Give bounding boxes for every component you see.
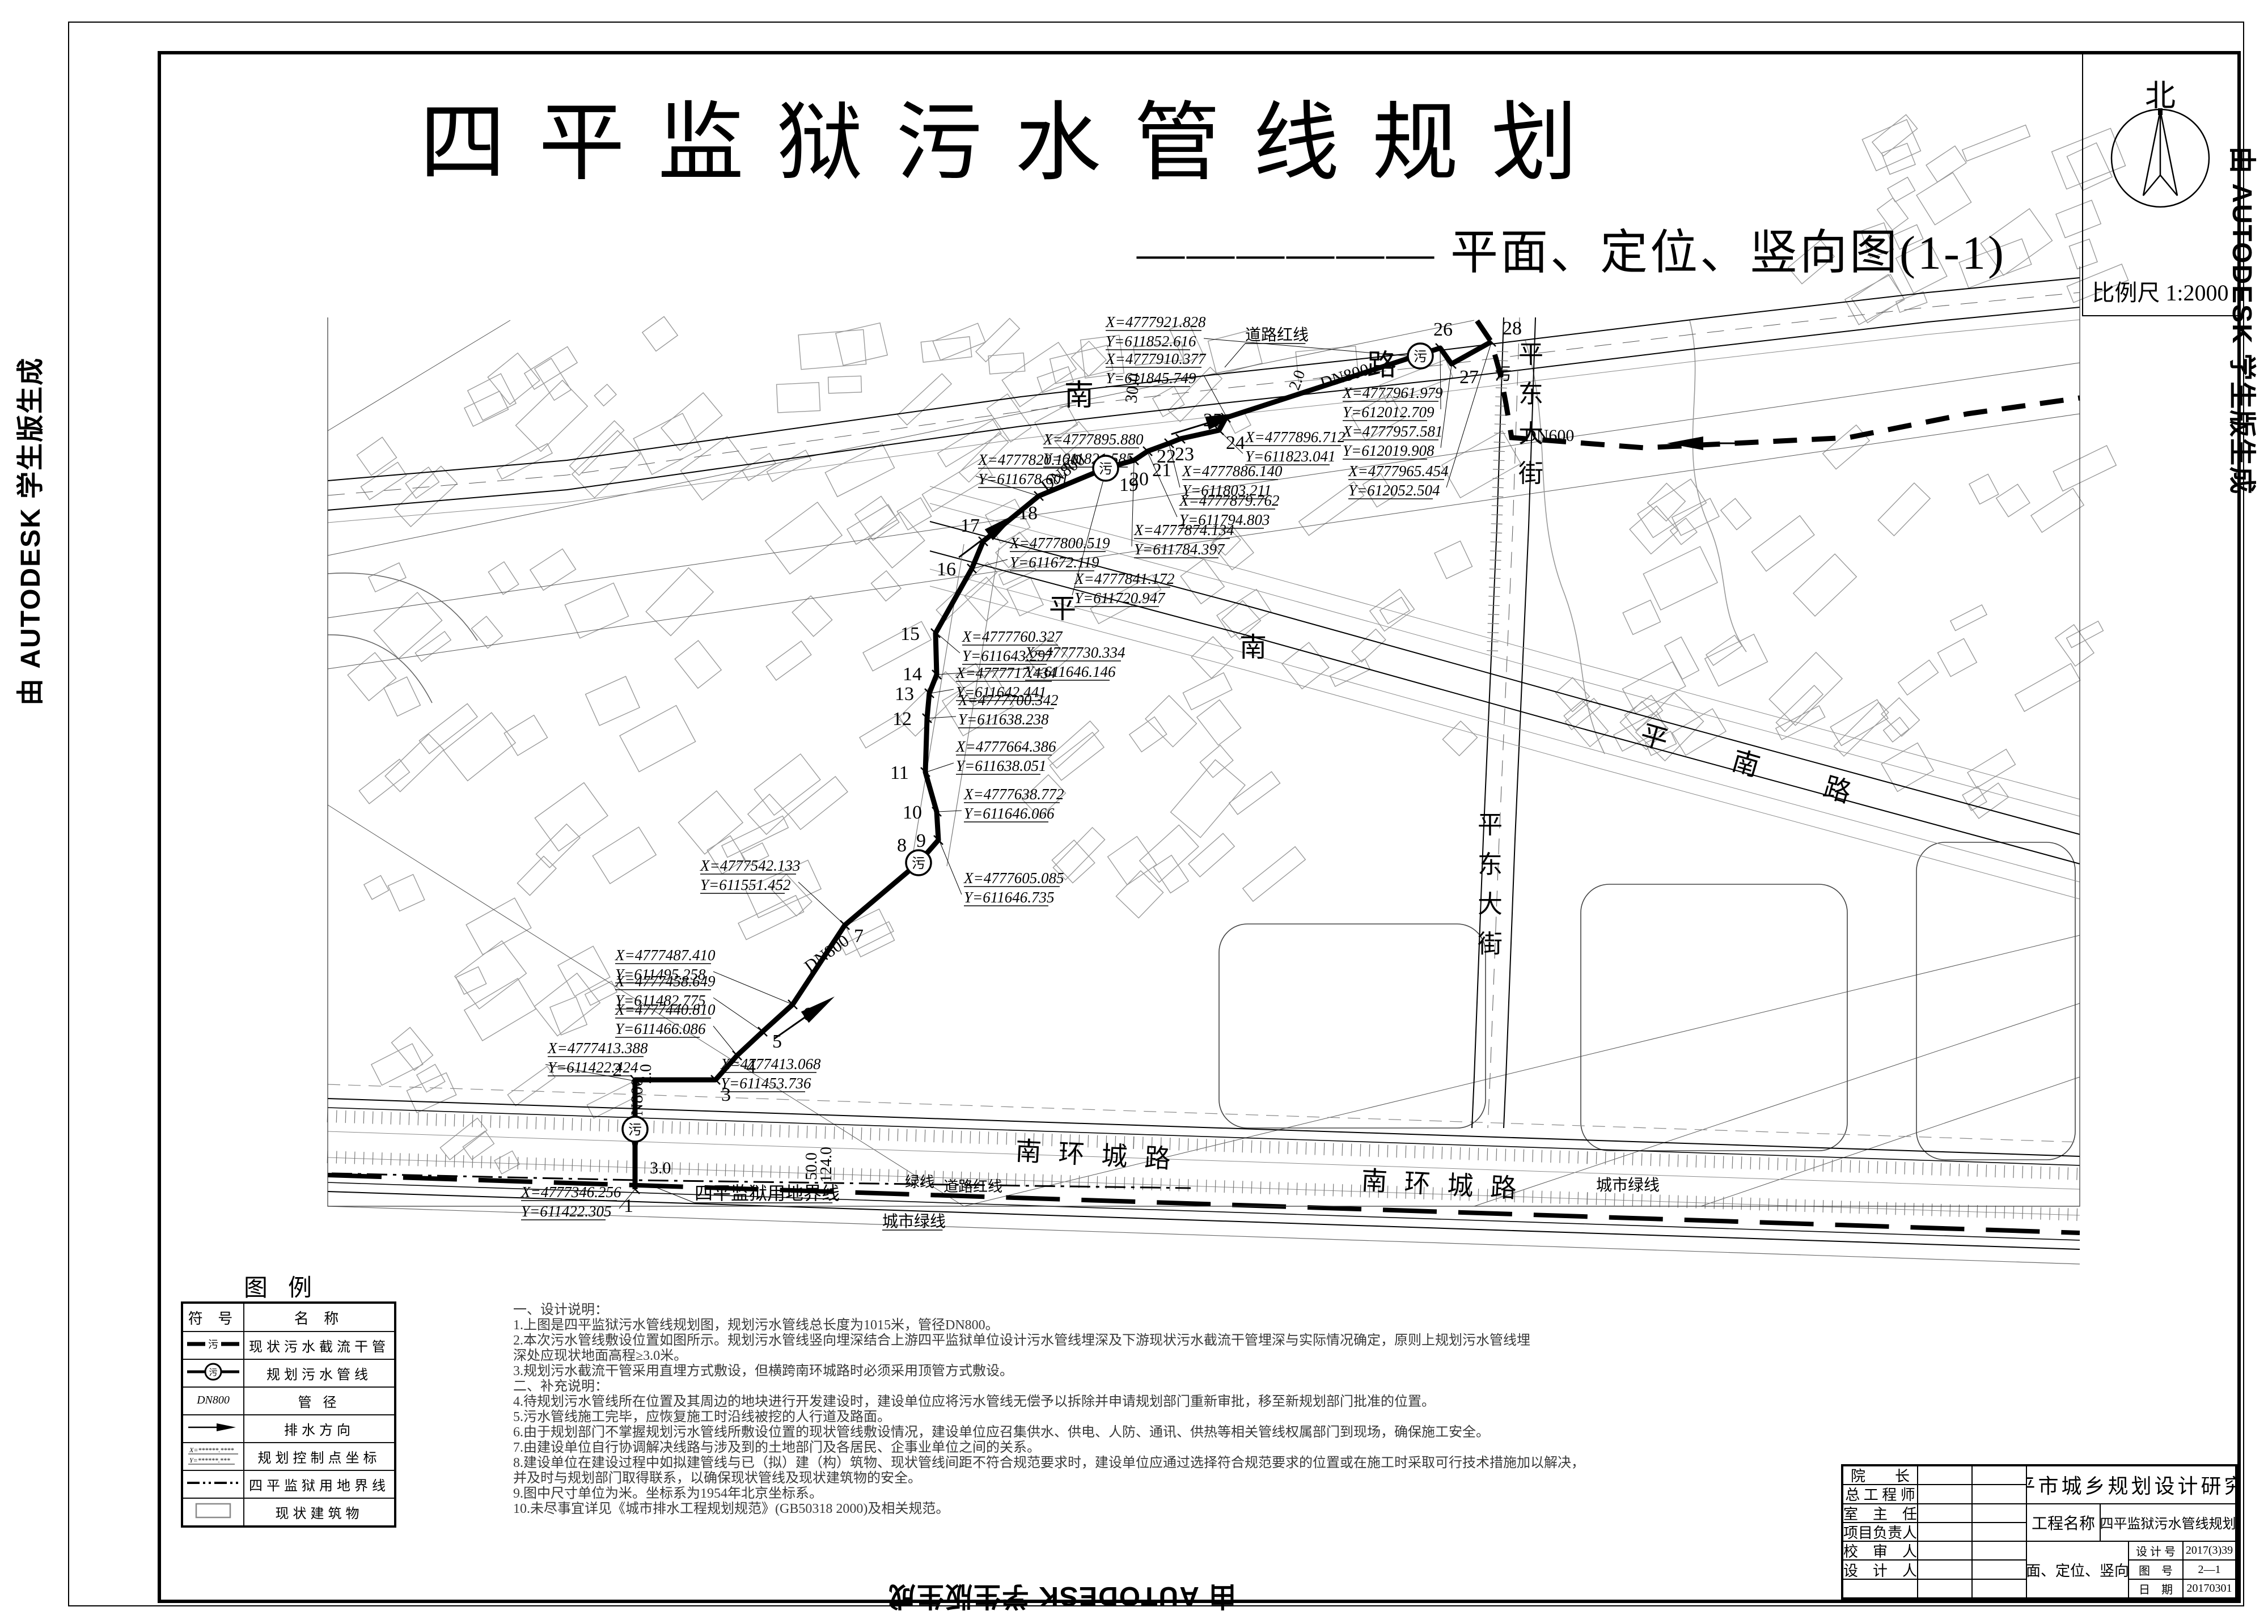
hatch-tick — [1495, 415, 1506, 415]
building — [964, 577, 1008, 621]
hatch-tick — [1814, 1159, 1814, 1172]
coord-label-y: Y=611495.258 — [615, 966, 706, 983]
building — [933, 323, 985, 360]
building — [1665, 637, 1699, 679]
hatch-tick — [654, 1121, 654, 1133]
hatch-tick — [1641, 1194, 1642, 1206]
hatch-tick — [445, 1155, 446, 1167]
building — [765, 502, 842, 574]
node-number: 22 — [1157, 446, 1176, 467]
coord-leader — [713, 998, 763, 1032]
hatch-tick — [761, 1165, 762, 1177]
hatch-tick — [1206, 1180, 1207, 1192]
building — [1007, 578, 1043, 616]
hatch-tick — [1669, 1195, 1669, 1207]
coord-label-x: X=4777413.388 — [547, 1040, 648, 1057]
manhole-glyph: 污 — [1414, 349, 1427, 364]
note-line: 1.上图是四平监狱污水管线规划图，规划污水管线总长度为1015米，管径DN800… — [513, 1318, 2050, 1333]
building — [1352, 629, 1386, 662]
coord-label-x: X=4777605.085 — [963, 870, 1064, 887]
building — [1721, 498, 1751, 529]
hatch-tick — [645, 1161, 645, 1173]
hatch-tick — [1489, 587, 1500, 588]
building — [988, 353, 1025, 374]
hatch-tick — [536, 1157, 536, 1170]
node-number: 24 — [1226, 432, 1245, 453]
hatch-tick — [545, 1158, 545, 1171]
hatch-tick — [1805, 1159, 1805, 1171]
note-line: 6.由于规划部门不掌握规划污水管线所敷设位置的现状管线敷设情况，建设单位应召集供… — [513, 1425, 2050, 1440]
drawing-title: 四平监狱污水管线规划 — [363, 73, 1667, 197]
hatch-tick — [752, 1165, 753, 1177]
hatch-tick — [1233, 1140, 1234, 1152]
hatch-tick — [761, 1124, 762, 1137]
hatch-tick — [1491, 542, 1502, 542]
hatch-tick — [1342, 1184, 1343, 1197]
hatch-tick — [1968, 1164, 1969, 1176]
building — [1623, 600, 1660, 635]
hatch-tick — [509, 1116, 509, 1129]
node-number: 18 — [1018, 503, 1038, 524]
hatch-tick — [436, 1154, 437, 1167]
plot-outline — [1219, 924, 1486, 1128]
building — [1937, 639, 1977, 677]
hatch-tick — [1660, 1195, 1660, 1207]
hatch-tick — [1015, 1173, 1016, 1186]
building — [359, 759, 409, 803]
building — [642, 316, 678, 351]
building — [777, 383, 820, 413]
hatch-tick — [1578, 1192, 1579, 1205]
node-number: 10 — [903, 802, 922, 823]
building — [2031, 488, 2084, 532]
building — [898, 374, 951, 425]
hatch-tick — [1551, 1150, 1551, 1163]
hatch-tick — [409, 1154, 409, 1166]
coord-label-x: X=4777800.519 — [1009, 535, 1110, 552]
hatch-tick — [1732, 1156, 1733, 1169]
coord-leader — [926, 763, 954, 772]
hatch-tick — [373, 1152, 373, 1165]
design-notes: 一、设计说明：1.上图是四平监狱污水管线规划图，规划污水管线总长度为1015米，… — [513, 1303, 2050, 1517]
hatch-tick — [599, 1160, 600, 1172]
hatch-tick — [680, 1163, 680, 1175]
hatch-tick — [382, 1152, 382, 1165]
building — [1243, 847, 1306, 901]
hatch-tick — [518, 1157, 518, 1169]
hatch-tick — [888, 1169, 889, 1182]
hatch-tick — [599, 1119, 600, 1131]
hatch-tick — [1242, 1181, 1243, 1193]
hatch-tick — [1215, 1180, 1216, 1193]
manhole-glyph: 污 — [1099, 461, 1112, 477]
note-line: 9.图中尺寸单位为米。坐标系为1954年北京坐标系。 — [513, 1486, 2050, 1502]
coord-label-x: X=4777895.880 — [1043, 431, 1144, 448]
building — [1116, 871, 1163, 918]
sheet-no-value: 2—1 — [2183, 1560, 2236, 1579]
hatch-tick — [409, 1113, 409, 1125]
hatch-tick — [843, 1127, 844, 1139]
note-line: 7.由建设单位自行协调解决线路与涉及到的土地部门及各居民、企事业单位之间的关系。 — [513, 1440, 2050, 1456]
hatch-tick — [1251, 1181, 1252, 1194]
hatch-tick — [1487, 642, 1499, 642]
dimension-label: 124.0 — [818, 1147, 835, 1182]
road-name-label: 南 — [1239, 633, 1267, 663]
manhole-glyph: 污 — [628, 1122, 642, 1138]
hatch-tick — [997, 1132, 998, 1144]
hatch-tick — [2059, 1167, 2059, 1180]
hatch-tick — [952, 1130, 953, 1143]
hatch-tick — [961, 1131, 962, 1143]
hatch-tick — [771, 1125, 771, 1137]
node-number: 8 — [897, 835, 907, 856]
legend-title: 图例 — [244, 1269, 332, 1303]
road-name-label: 平 — [1478, 811, 1503, 839]
map-annotation: 城市绿线 — [1596, 1176, 1660, 1194]
hatch-tick — [1923, 1203, 1923, 1216]
legend-row: 排水方向 — [182, 1415, 395, 1443]
coord-label-y: Y=611643.297 — [962, 647, 1053, 664]
building — [1180, 559, 1224, 604]
pingnan-road-parallel — [930, 569, 2080, 882]
hatch-tick — [418, 1113, 418, 1125]
hatch-tick — [1569, 1151, 1569, 1163]
title-block: 院 长总 工 程 师室 主 任项目负责人校 审 人设 计 人四平市城乡规划设计研… — [1841, 1464, 2237, 1600]
hatch-tick — [1493, 460, 1504, 461]
titleblock-role-label: 院 长 — [1843, 1466, 1918, 1485]
map-annotation: 道路红线 — [943, 1178, 1002, 1195]
svg-text:污: 污 — [209, 1368, 217, 1377]
road-name-label: 街 — [1478, 930, 1503, 958]
node-number: 7 — [854, 926, 864, 947]
hatch-tick — [1170, 1178, 1170, 1191]
hatch-tick — [1759, 1198, 1760, 1210]
building — [455, 941, 526, 1009]
hatch-tick — [1968, 1205, 1969, 1217]
building — [1370, 589, 1415, 631]
coord-label-y: Y=611453.736 — [721, 1075, 811, 1092]
coord-label-y: Y=611646.146 — [1025, 663, 1116, 680]
coord-label-y: Y=612019.908 — [1343, 442, 1435, 459]
building — [1705, 634, 1768, 686]
hatch-tick — [1224, 1180, 1225, 1193]
hatch-tick — [1651, 1194, 1651, 1207]
hatch-tick — [2004, 1206, 2005, 1219]
map-annotation: DN600 — [1524, 426, 1574, 445]
hatch-tick — [689, 1122, 689, 1134]
hatch-tick — [581, 1118, 582, 1131]
hatch-tick — [1351, 1144, 1352, 1156]
road-name-label: 大 — [1478, 891, 1503, 918]
hatch-tick — [608, 1160, 609, 1172]
hatch-tick — [1560, 1151, 1560, 1163]
project-name-value: 四平监狱污水管线规划 — [2100, 1504, 2236, 1542]
building — [1834, 702, 1889, 756]
hatch-tick — [698, 1122, 699, 1135]
hatch-tick — [2032, 1166, 2032, 1178]
building — [536, 824, 580, 868]
hatch-tick — [861, 1168, 862, 1181]
hatch-tick — [1369, 1144, 1370, 1157]
date-label: 日 期 — [2129, 1579, 2183, 1598]
hatch-tick — [2050, 1167, 2050, 1179]
building — [586, 676, 640, 726]
hatch-tick — [1741, 1156, 1742, 1169]
hatch-tick — [1491, 533, 1502, 533]
hatch-tick — [427, 1154, 428, 1167]
legend-symbol-flow-arrow-icon — [182, 1415, 244, 1443]
building — [472, 616, 503, 648]
hatch-tick — [1488, 605, 1500, 606]
hatch-tick — [1333, 1143, 1334, 1156]
building — [2055, 625, 2094, 666]
hatch-tick — [1841, 1160, 1842, 1172]
hatch-tick — [1578, 1151, 1579, 1164]
building — [1145, 696, 1196, 747]
coord-label-y: Y=611422.424 — [548, 1059, 638, 1076]
hatch-tick — [743, 1123, 744, 1136]
coord-leader — [938, 811, 962, 812]
hatch-tick — [617, 1120, 618, 1132]
legend-table: 符 号 名 称 污现状污水截流干管污规划污水管线DN800管 径排水方向X=**… — [181, 1301, 396, 1528]
hatch-tick — [1306, 1183, 1306, 1195]
plot-outline — [1581, 884, 1847, 1151]
building — [456, 967, 486, 994]
legend-row: 现状建筑物 — [182, 1498, 395, 1527]
legend-name: 规划污水管线 — [244, 1359, 395, 1387]
hatch-tick — [572, 1118, 573, 1130]
hatch-tick — [925, 1130, 925, 1142]
building — [1751, 516, 1814, 571]
hatch-tick — [509, 1157, 509, 1169]
hatch-tick — [916, 1129, 916, 1142]
road-name-label: 东 — [1478, 851, 1503, 879]
building — [488, 562, 518, 595]
north-arrow-icon — [2106, 104, 2214, 212]
hatch-tick — [554, 1158, 555, 1171]
building — [468, 374, 516, 420]
hatch-tick — [436, 1113, 437, 1126]
hatch-tick — [1215, 1139, 1216, 1152]
hatch-tick — [1678, 1155, 1678, 1167]
hatch-tick — [1941, 1163, 1941, 1176]
building — [1830, 699, 1888, 745]
hatch-tick — [1596, 1152, 1597, 1164]
titleblock-date-cell — [1972, 1579, 2026, 1598]
hatch-tick — [979, 1131, 980, 1144]
coord-label-y: Y=611551.452 — [700, 876, 790, 893]
building — [1435, 541, 1472, 578]
hatch-tick — [1714, 1197, 1715, 1209]
hatch-tick — [1297, 1142, 1297, 1154]
legend-symbol-text-icon: DN800 — [182, 1387, 244, 1415]
hatch-tick — [1043, 1174, 1043, 1187]
building — [748, 794, 788, 834]
note-line: 并及时与规划部门取得联系，以确保现状管线及现状建筑物的安全。 — [513, 1471, 2050, 1486]
coord-label-y: Y=611642.441 — [956, 684, 1046, 701]
building — [2015, 664, 2080, 712]
hatch-tick — [1378, 1144, 1379, 1157]
coord-leader — [713, 1026, 737, 1055]
coord-label-x: X=4777638.772 — [963, 786, 1064, 803]
titleblock-signature-cell — [1918, 1485, 1972, 1503]
legend-col-name: 名 称 — [244, 1303, 395, 1332]
note-line: 3.规划污水截流干管采用直埋方式敷设，但横跨南环城路时必须采用顶管方式敷设。 — [513, 1364, 2050, 1379]
legend-symbol-planned-pipe-icon: 污 — [182, 1359, 244, 1387]
hatch-tick — [1360, 1144, 1361, 1156]
hatch-tick — [1495, 424, 1506, 425]
building — [1140, 825, 1199, 882]
hatch-tick — [1415, 1146, 1415, 1158]
coord-label-x: X=4777542.133 — [700, 857, 800, 874]
hatch-tick — [563, 1159, 564, 1171]
hatch-tick — [789, 1125, 789, 1138]
building — [530, 549, 576, 590]
hatch-tick — [698, 1163, 699, 1176]
hatch-tick — [481, 1156, 482, 1168]
titleblock-role-label: 设 计 人 — [1843, 1560, 1918, 1579]
hatch-tick — [1841, 1201, 1842, 1213]
hatch-tick — [1442, 1147, 1442, 1159]
hatch-tick — [1551, 1191, 1551, 1203]
node-number: 26 — [1433, 319, 1453, 340]
road-redline — [328, 1084, 2080, 1142]
hatch-tick — [1488, 614, 1499, 615]
alignment-line — [1701, 1077, 2080, 1206]
hatch-tick — [1496, 388, 1507, 388]
building — [1962, 125, 2030, 162]
building — [464, 978, 536, 1041]
hatch-tick — [1687, 1155, 1687, 1167]
hatch-tick — [1950, 1163, 1950, 1176]
coord-label-y: Y=611852.616 — [1106, 333, 1196, 350]
project-name-label: 工程名称 — [2026, 1504, 2100, 1542]
alignment-line — [328, 320, 510, 431]
hatch-tick — [2077, 1168, 2077, 1180]
coord-label-y: Y=611638.238 — [958, 711, 1049, 728]
legend-row: 污规划污水管线 — [182, 1359, 395, 1387]
hatch-tick — [1605, 1193, 1606, 1205]
coord-label-x: X=4777841.172 — [1074, 570, 1174, 587]
hatch-tick — [1406, 1146, 1406, 1158]
hatch-tick — [418, 1154, 418, 1166]
hatch-tick — [1034, 1174, 1034, 1186]
building — [921, 337, 972, 362]
legend-name: 管 径 — [244, 1387, 395, 1415]
hatch-tick — [1932, 1203, 1932, 1216]
node-number: 23 — [1175, 444, 1194, 465]
hatch-tick — [716, 1123, 717, 1135]
coord-label-x: X=4777961.979 — [1342, 384, 1443, 401]
hatch-tick — [472, 1155, 473, 1168]
hatch-tick — [1732, 1197, 1733, 1210]
hatch-tick — [1832, 1160, 1833, 1172]
hatch-tick — [1433, 1146, 1433, 1159]
road-name-label: 南 — [1064, 380, 1094, 412]
note-line: 5.污水管线施工完毕，应恢复施工时沿线被挖的人行道及路面。 — [513, 1410, 2050, 1425]
building — [535, 783, 608, 851]
svg-text:Y=******.***: Y=******.*** — [189, 1456, 230, 1464]
hatch-tick — [1188, 1179, 1188, 1192]
hatch-tick — [1859, 1201, 1860, 1214]
hatch-tick — [1006, 1133, 1007, 1145]
hatch-tick — [1492, 478, 1504, 479]
building — [1217, 590, 1271, 638]
date-value: 20170301 — [2183, 1579, 2236, 1598]
hatch-tick — [1397, 1145, 1397, 1157]
building — [585, 981, 617, 1006]
legend-name: 四平监狱用地界线 — [244, 1470, 395, 1498]
hatch-tick — [843, 1168, 844, 1180]
hatch-tick — [2004, 1165, 2005, 1178]
building — [646, 568, 713, 636]
hatch-tick — [780, 1125, 780, 1137]
titleblock-date-cell — [1972, 1485, 2026, 1503]
alignment-line — [1474, 1003, 2080, 1206]
hatch-tick — [1986, 1206, 1987, 1218]
hatch-tick — [454, 1155, 455, 1167]
hatch-tick — [1623, 1152, 1624, 1165]
hatch-tick — [1623, 1193, 1624, 1206]
hatch-tick — [345, 1151, 346, 1164]
hatch-tick — [1288, 1142, 1288, 1154]
hatch-tick — [572, 1159, 573, 1171]
sheet-no-label: 图 号 — [2129, 1560, 2183, 1579]
road-name-label: 平 — [1049, 594, 1076, 624]
hatch-tick — [1995, 1206, 1996, 1218]
hatch-tick — [490, 1156, 491, 1168]
building — [1884, 718, 1909, 742]
coord-label-y: Y=611646.066 — [964, 805, 1055, 822]
hatch-tick — [2032, 1207, 2032, 1219]
hatch-tick — [490, 1115, 491, 1127]
hatch-tick — [1387, 1145, 1388, 1157]
hatch-tick — [1886, 1161, 1887, 1174]
hatch-tick — [590, 1118, 591, 1131]
node-number: 27 — [1459, 367, 1479, 388]
legend-row: X=******.****Y=******.***规划控制点坐标 — [182, 1443, 395, 1470]
hatch-tick — [672, 1121, 672, 1134]
hatch-tick — [1995, 1165, 1996, 1177]
hatch-tick — [816, 1126, 816, 1138]
hatch-tick — [1288, 1182, 1288, 1195]
svg-text:污: 污 — [208, 1339, 218, 1350]
dimension-label: 30.0 — [1122, 372, 1144, 404]
hatch-tick — [1778, 1157, 1778, 1170]
hatch-tick — [1696, 1155, 1696, 1168]
hatch-tick — [707, 1122, 708, 1135]
hatch-tick — [1514, 1149, 1515, 1161]
hatch-tick — [1489, 578, 1500, 579]
hatch-tick — [716, 1164, 717, 1176]
hatch-tick — [1605, 1152, 1606, 1164]
building — [569, 421, 624, 475]
building — [558, 946, 610, 996]
hatch-tick — [608, 1119, 609, 1131]
hatch-tick — [1333, 1184, 1334, 1197]
hatch-tick — [1197, 1180, 1198, 1192]
hatch-tick — [1487, 1148, 1488, 1161]
building — [1878, 483, 1930, 536]
hatch-tick — [1895, 1202, 1896, 1215]
design-no-label: 设 计 号 — [2129, 1541, 2183, 1560]
hatch-tick — [400, 1112, 400, 1125]
hatch-tick — [1490, 569, 1501, 570]
subtitle-text: 平面、定位、竖向图(1-1) — [1436, 227, 2006, 279]
building — [1823, 425, 1870, 469]
road-name-label: 路 — [1367, 350, 1397, 382]
hatch-tick — [1297, 1182, 1297, 1195]
